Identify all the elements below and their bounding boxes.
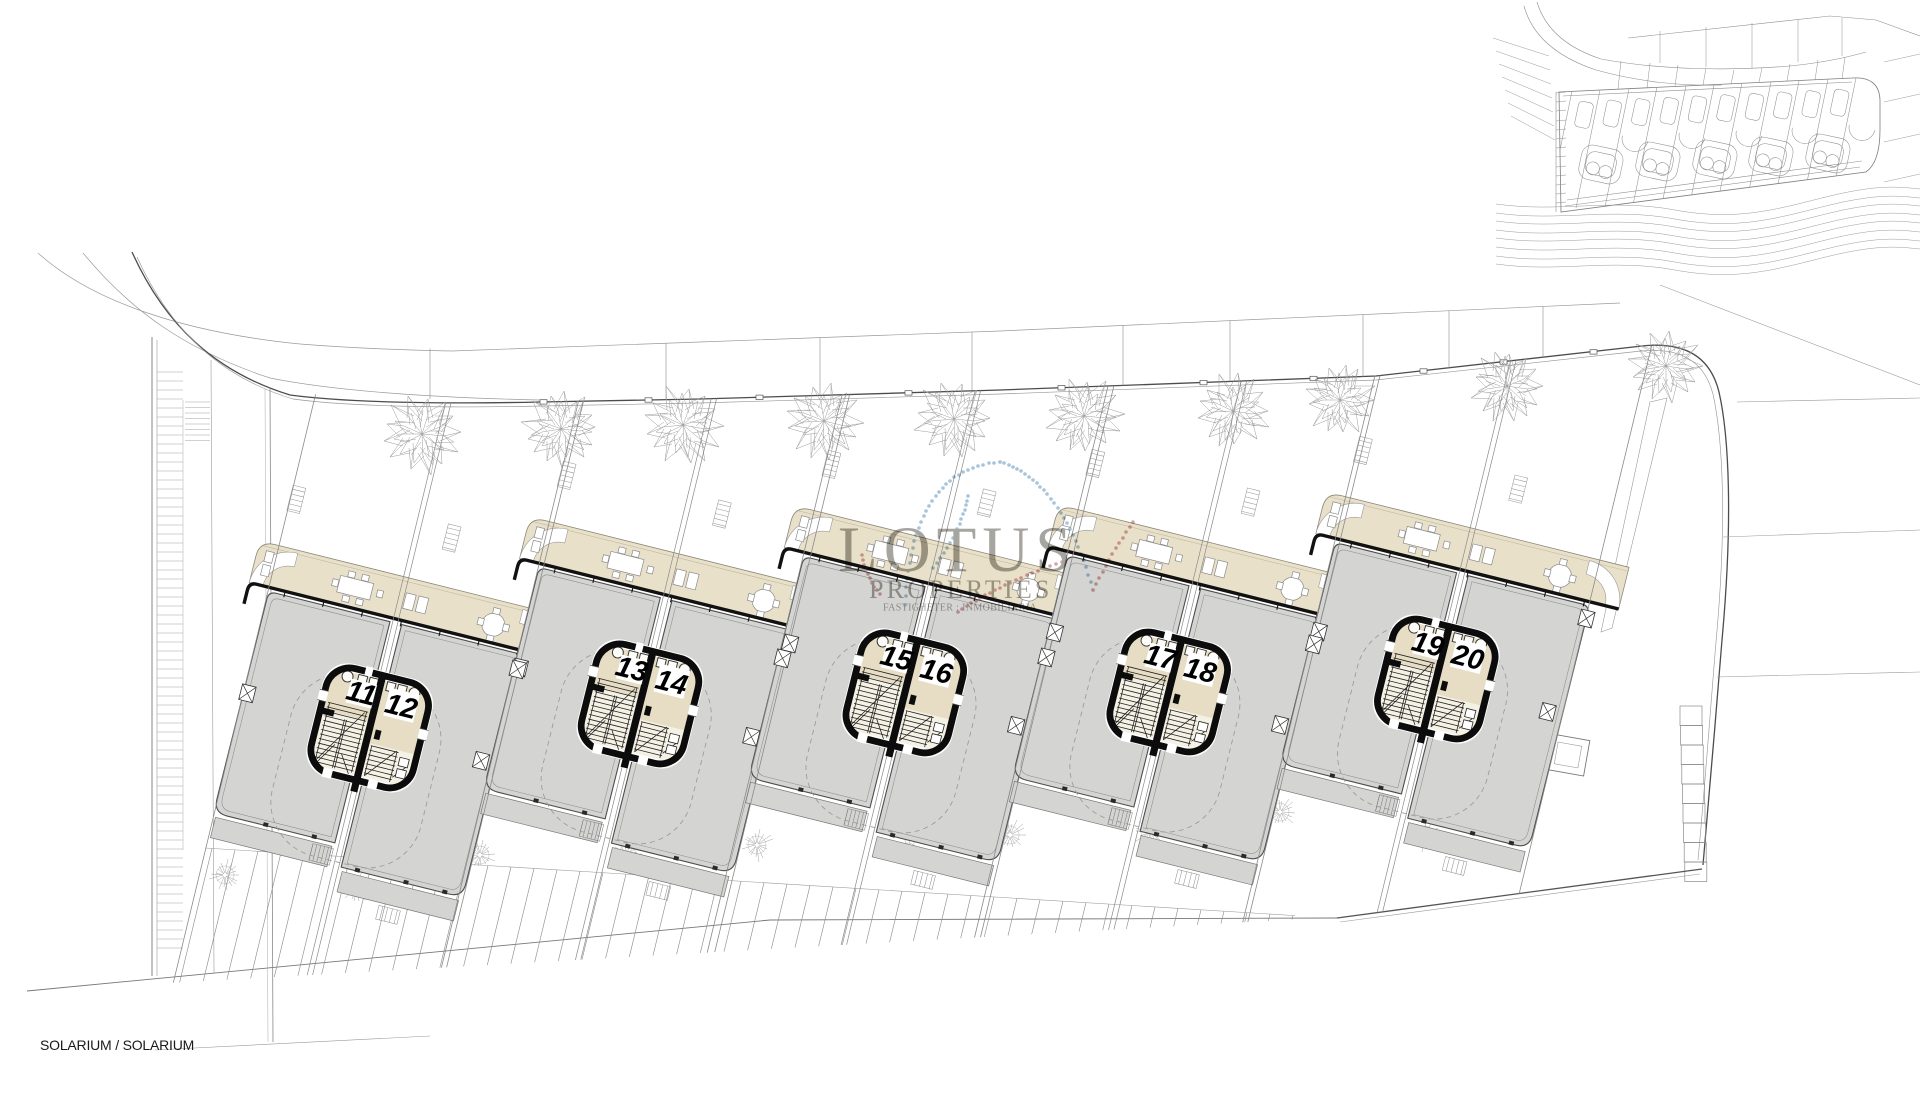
svg-text:PROPERTIES: PROPERTIES bbox=[869, 575, 1053, 604]
svg-text:SOLARIUM / SOLARIUM: SOLARIUM / SOLARIUM bbox=[40, 1037, 194, 1053]
svg-text:FASTIGHETER : INMOBILIARIA: FASTIGHETER : INMOBILIARIA bbox=[883, 603, 1037, 614]
